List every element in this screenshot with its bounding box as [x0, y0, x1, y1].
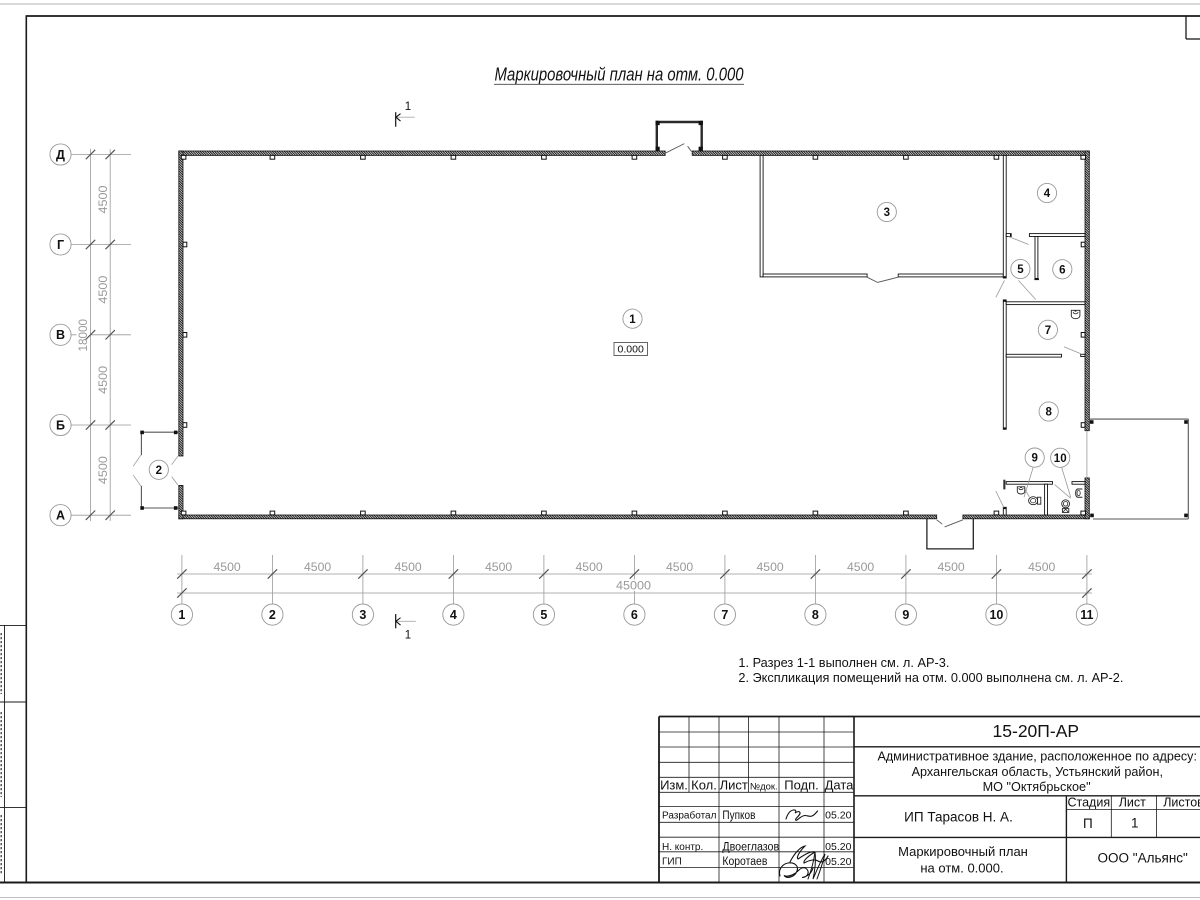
svg-text:4500: 4500	[96, 456, 110, 484]
svg-text:6: 6	[1059, 264, 1065, 276]
svg-text:№док.: №док.	[750, 781, 778, 792]
svg-text:Листов: Листов	[1163, 796, 1200, 810]
svg-text:7: 7	[1045, 325, 1051, 337]
svg-text:Маркировочный план на отм. 0.0: Маркировочный план на отм. 0.000	[495, 63, 745, 84]
svg-text:Подп.: Подп.	[784, 777, 819, 792]
svg-text:8: 8	[812, 608, 819, 622]
svg-text:Д: Д	[56, 148, 65, 162]
svg-text:4500: 4500	[666, 560, 694, 574]
svg-text:А: А	[56, 509, 65, 523]
svg-text:1: 1	[629, 314, 636, 326]
svg-text:05.20: 05.20	[825, 841, 851, 853]
svg-text:Дата: Дата	[825, 777, 855, 792]
svg-text:3: 3	[359, 608, 366, 622]
svg-text:4500: 4500	[757, 560, 785, 574]
svg-text:3: 3	[884, 207, 890, 219]
svg-text:7: 7	[721, 608, 728, 622]
svg-text:Стадия: Стадия	[1067, 796, 1110, 810]
svg-text:П: П	[1083, 816, 1093, 831]
svg-text:4500: 4500	[576, 560, 604, 574]
svg-text:05.20: 05.20	[825, 856, 851, 868]
svg-text:4500: 4500	[1028, 560, 1056, 574]
svg-text:1: 1	[405, 630, 411, 642]
svg-text:ИП Тарасов Н. А.: ИП Тарасов Н. А.	[904, 809, 1013, 824]
svg-text:4500: 4500	[938, 560, 966, 574]
svg-text:1: 1	[405, 101, 411, 113]
svg-text:0.000: 0.000	[618, 344, 644, 356]
svg-text:4500: 4500	[214, 560, 242, 574]
svg-text:Г: Г	[57, 238, 64, 252]
svg-text:Пупков: Пупков	[722, 810, 755, 822]
svg-text:4500: 4500	[395, 560, 423, 574]
svg-text:Разработал: Разработал	[662, 809, 717, 821]
svg-text:ООО "Альянс": ООО "Альянс"	[1098, 851, 1188, 866]
svg-text:05.20: 05.20	[825, 810, 851, 822]
svg-text:5: 5	[540, 608, 547, 622]
svg-text:2: 2	[269, 608, 276, 622]
svg-text:4500: 4500	[304, 560, 332, 574]
svg-text:на отм. 0.000.: на отм. 0.000.	[920, 860, 1003, 875]
svg-text:В: В	[56, 328, 65, 342]
svg-text:4500: 4500	[96, 275, 110, 303]
svg-text:Двоеглазов: Двоеглазов	[722, 841, 779, 853]
svg-text:Архангельская область, Устьянс: Архангельская область, Устьянский район,	[912, 764, 1163, 779]
svg-text:9: 9	[1031, 453, 1037, 465]
svg-text:ГИП: ГИП	[662, 857, 682, 868]
svg-text:18000: 18000	[76, 319, 90, 352]
svg-text:45000: 45000	[616, 579, 651, 593]
svg-text:4500: 4500	[847, 560, 875, 574]
svg-text:2: 2	[156, 465, 162, 477]
svg-text:Н. контр.: Н. контр.	[662, 842, 703, 853]
svg-text:Кол.: Кол.	[691, 777, 717, 792]
svg-text:8: 8	[1045, 407, 1052, 419]
svg-text:5: 5	[1017, 264, 1024, 276]
svg-text:15-20П-АР: 15-20П-АР	[993, 721, 1080, 741]
svg-text:1. Разрез 1-1 выполнен см. л.: 1. Разрез 1-1 выполнен см. л. АР-3.	[738, 655, 949, 670]
svg-text:4500: 4500	[96, 365, 110, 393]
svg-text:4: 4	[1044, 188, 1051, 200]
svg-text:9: 9	[902, 608, 909, 622]
svg-text:Б: Б	[56, 418, 65, 432]
svg-text:4: 4	[450, 608, 457, 622]
svg-text:Изм.: Изм.	[660, 777, 688, 792]
svg-text:Коротаев: Коротаев	[722, 856, 767, 868]
svg-text:Лист: Лист	[720, 777, 748, 792]
svg-text:4500: 4500	[96, 185, 110, 213]
svg-text:11: 11	[1080, 608, 1093, 622]
svg-text:2. Экспликация помещений на от: 2. Экспликация помещений на отм. 0.000 в…	[738, 670, 1123, 685]
svg-text:4500: 4500	[485, 560, 513, 574]
svg-text:1: 1	[1131, 816, 1139, 831]
svg-text:1: 1	[178, 608, 185, 622]
svg-text:Лист: Лист	[1119, 796, 1146, 810]
svg-text:Маркировочный план: Маркировочный план	[898, 844, 1028, 859]
svg-text:МО "Октябрьское": МО "Октябрьское"	[983, 779, 1091, 794]
svg-text:6: 6	[631, 608, 638, 622]
svg-text:10: 10	[1054, 453, 1067, 465]
svg-text:10: 10	[989, 608, 1003, 622]
svg-text:Административное здание, распо: Административное здание, расположенное п…	[877, 748, 1197, 763]
